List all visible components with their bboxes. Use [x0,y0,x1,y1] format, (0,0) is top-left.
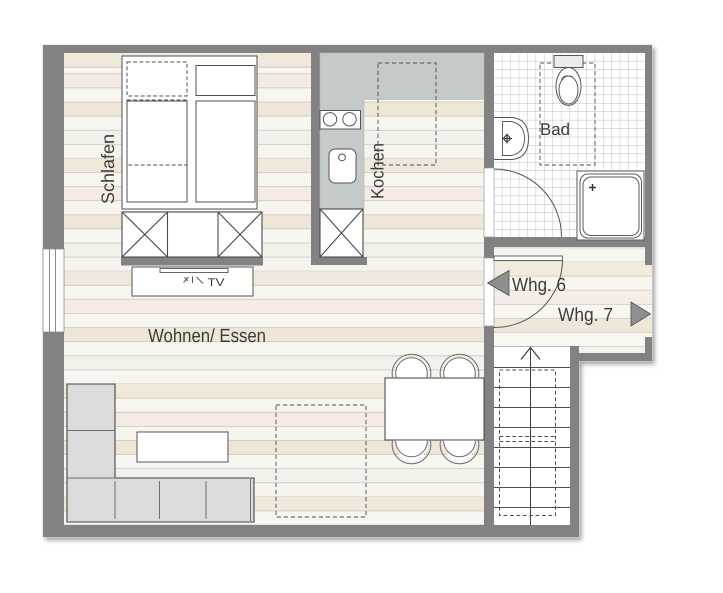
svg-text:Bad: Bad [540,120,570,139]
svg-text:Kochen: Kochen [368,143,388,199]
svg-text:Whg. 6: Whg. 6 [512,275,566,296]
svg-text:Schlafen: Schlafen [98,134,118,204]
svg-text:TV: TV [208,277,226,289]
svg-text:Wohnen/ Essen: Wohnen/ Essen [148,326,266,347]
svg-text:Whg. 7: Whg. 7 [558,305,613,326]
